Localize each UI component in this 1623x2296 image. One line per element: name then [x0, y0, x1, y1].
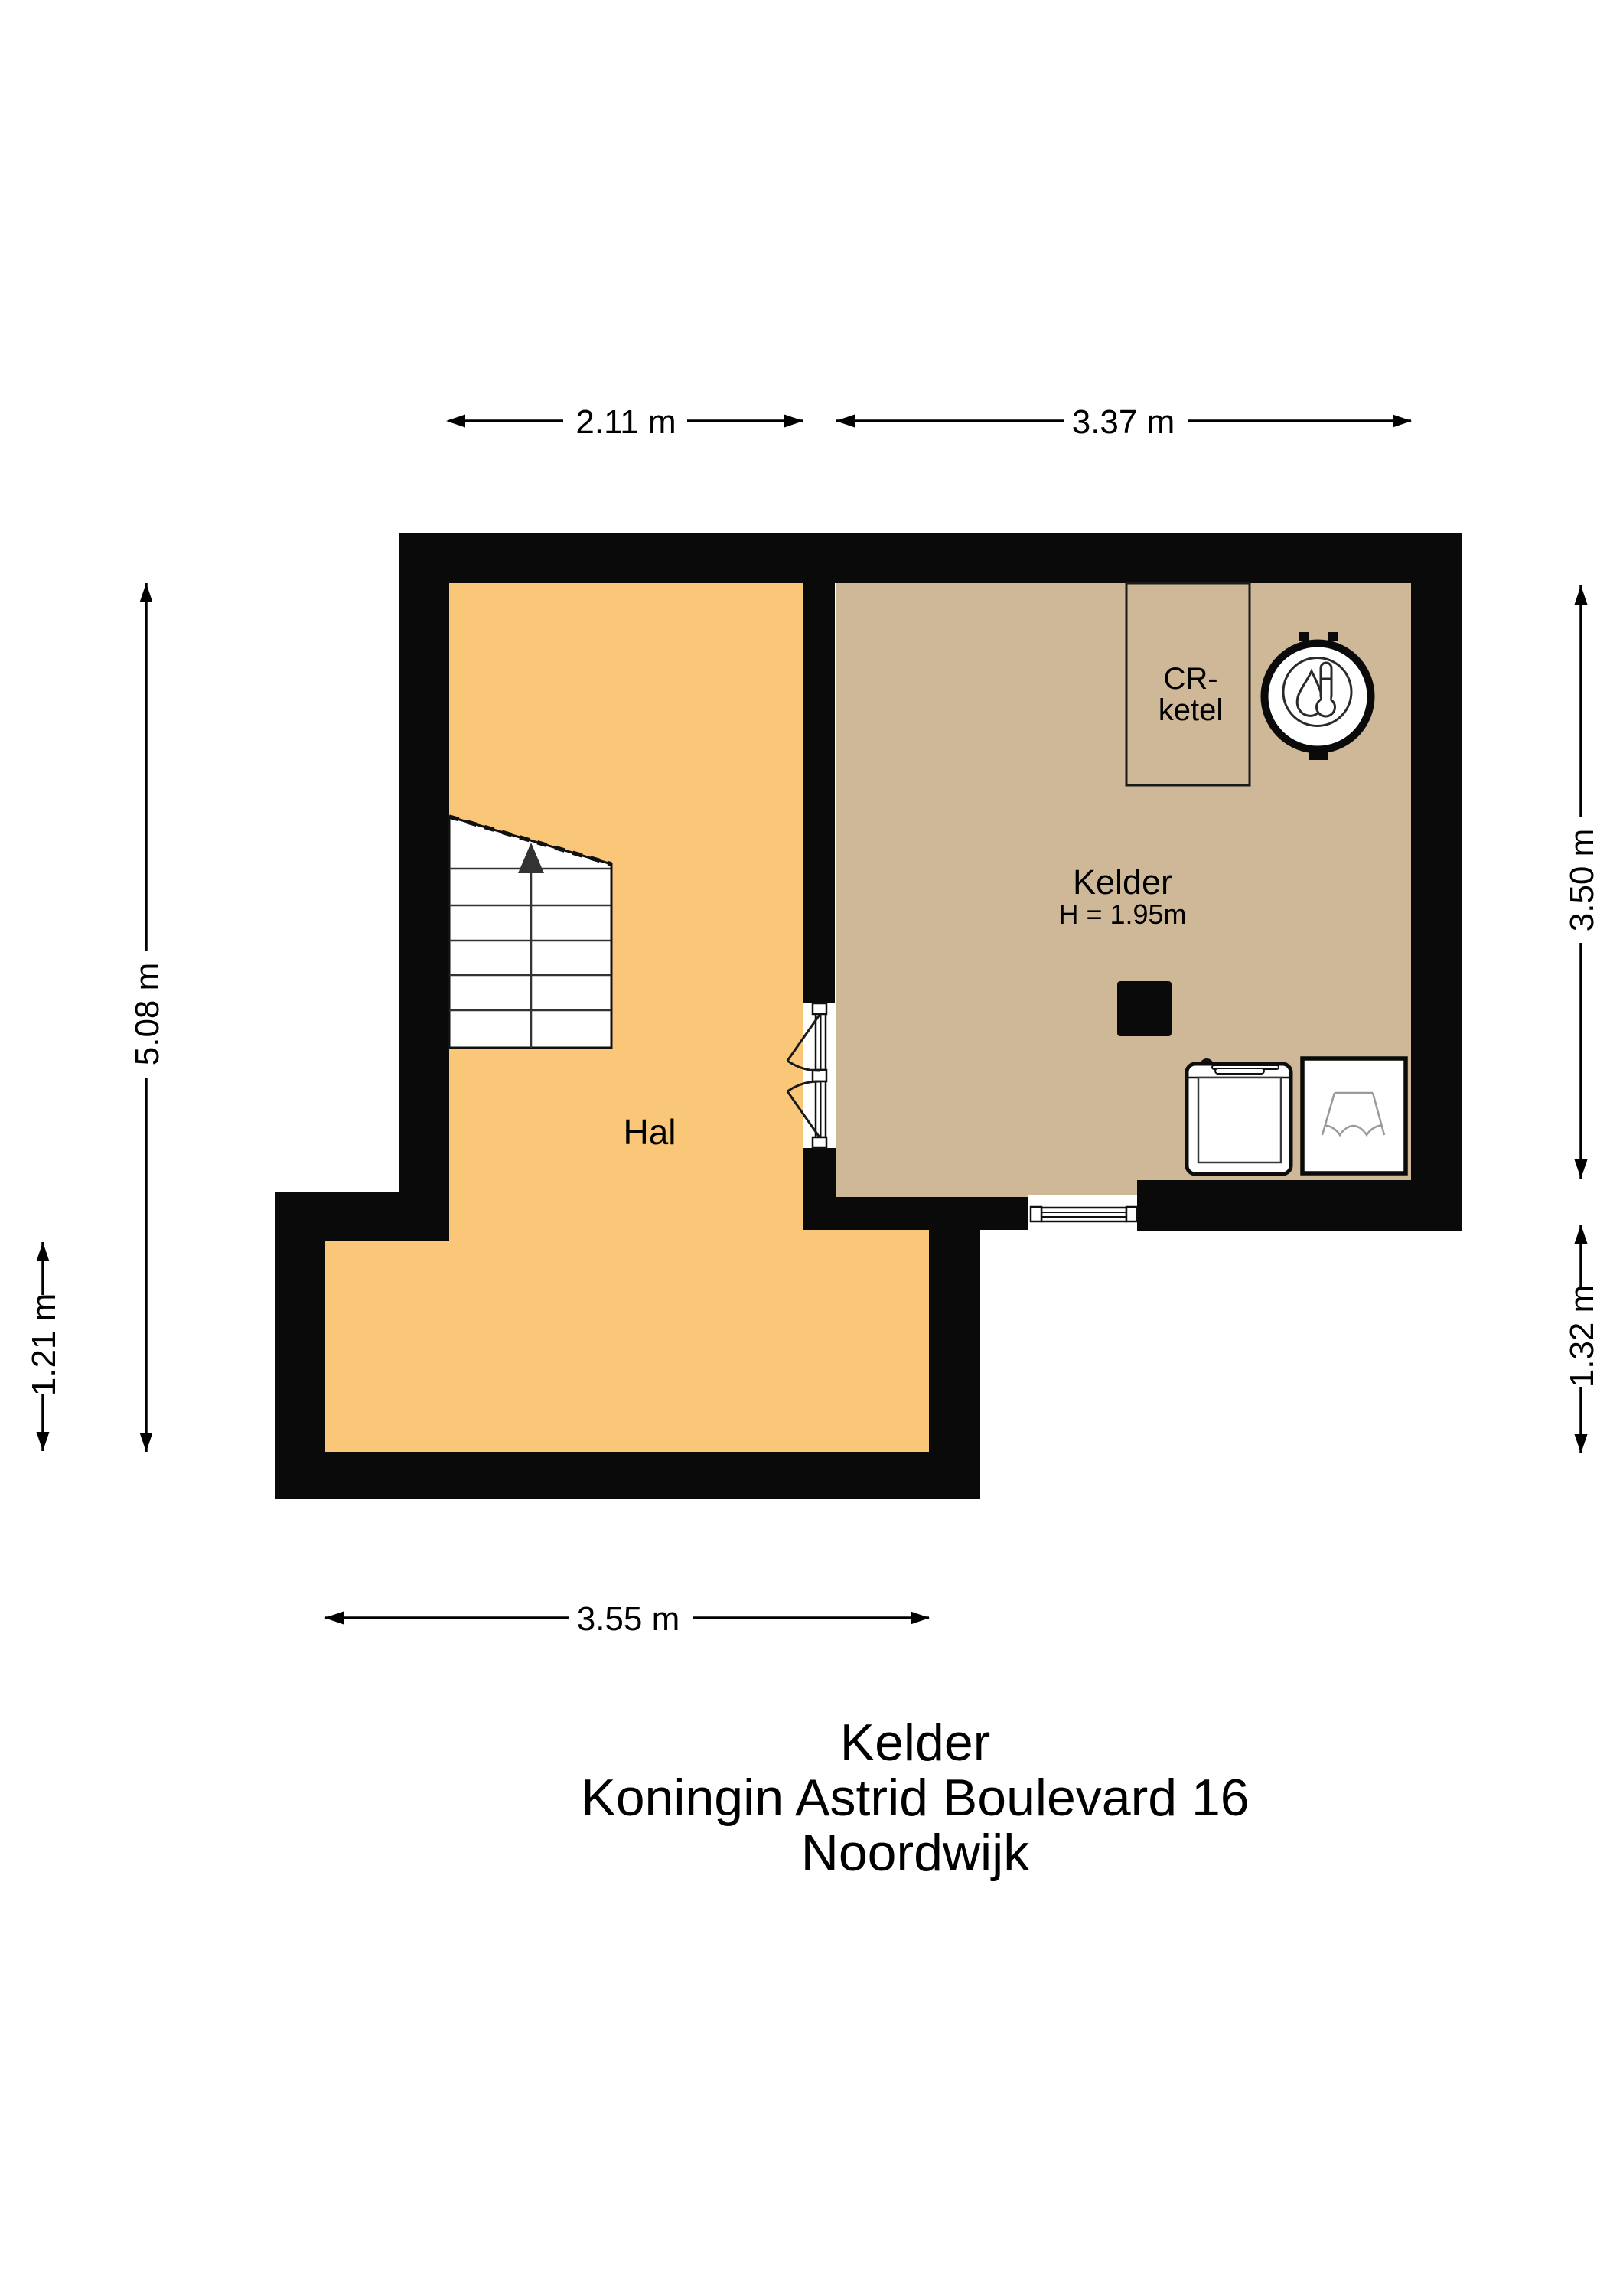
svg-text:1.21 m: 1.21 m — [25, 1293, 63, 1397]
svg-text:3.55 m: 3.55 m — [577, 1600, 680, 1638]
svg-text:H = 1.95m: H = 1.95m — [1058, 899, 1186, 930]
svg-text:3.50 m: 3.50 m — [1563, 829, 1601, 932]
svg-text:Kelder: Kelder — [1073, 863, 1172, 902]
svg-text:Hal: Hal — [623, 1112, 676, 1152]
svg-text:3.37 m: 3.37 m — [1072, 403, 1175, 441]
svg-text:ketel: ketel — [1159, 693, 1224, 727]
svg-text:Koningin Astrid Boulevard 16: Koningin Astrid Boulevard 16 — [581, 1769, 1249, 1827]
svg-text:CR-: CR- — [1163, 662, 1217, 696]
svg-text:2.11 m: 2.11 m — [575, 403, 676, 441]
svg-text:Kelder: Kelder — [840, 1714, 991, 1772]
svg-text:1.32 m: 1.32 m — [1563, 1285, 1601, 1388]
svg-text:Noordwijk: Noordwijk — [801, 1824, 1031, 1882]
svg-text:5.08 m: 5.08 m — [129, 963, 166, 1066]
